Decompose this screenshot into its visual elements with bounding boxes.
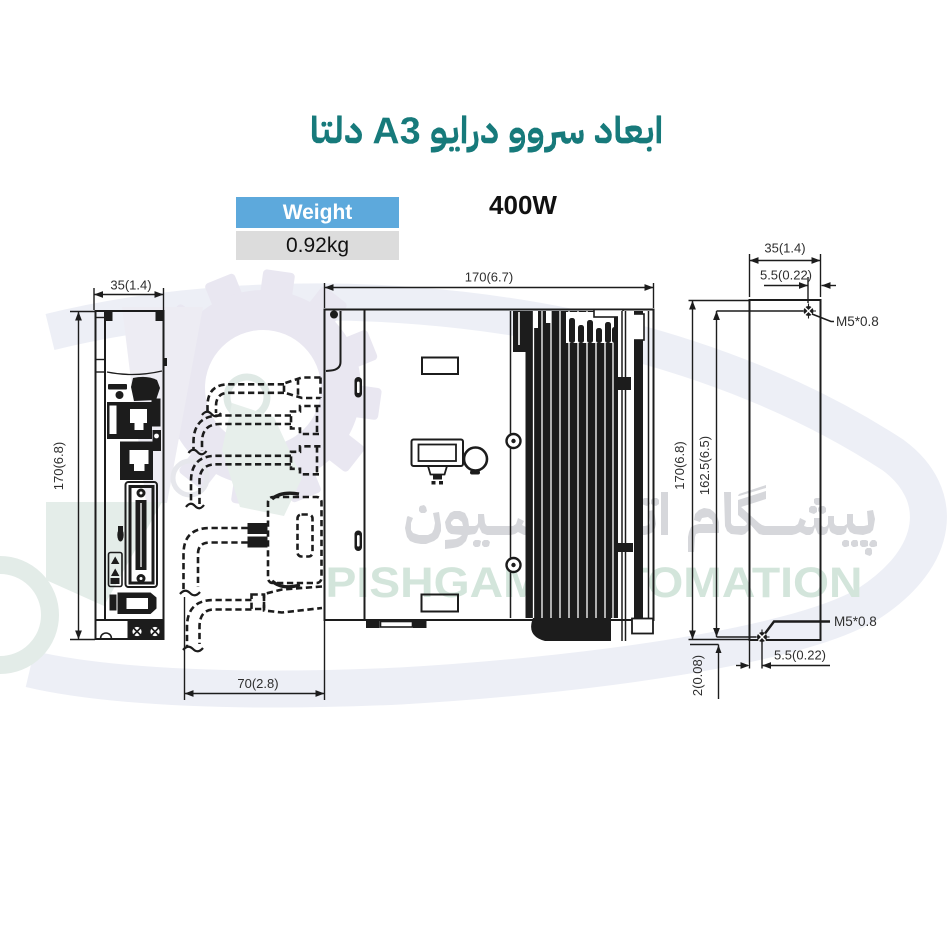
svg-text:70(2.8): 70(2.8) — [237, 676, 278, 691]
svg-text:35(1.4): 35(1.4) — [764, 241, 805, 256]
svg-text:35(1.4): 35(1.4) — [110, 278, 151, 293]
svg-text:170(6.7): 170(6.7) — [465, 270, 513, 285]
svg-text:170(6.8): 170(6.8) — [672, 441, 687, 489]
svg-text:M5*0.8: M5*0.8 — [834, 614, 877, 629]
svg-text:M5*0.8: M5*0.8 — [836, 314, 879, 329]
svg-text:5.5(0.22): 5.5(0.22) — [760, 268, 812, 283]
svg-text:162.5(6.5): 162.5(6.5) — [697, 436, 712, 495]
svg-text:2(0.08): 2(0.08) — [690, 655, 705, 696]
svg-text:170(6.8): 170(6.8) — [51, 442, 66, 490]
svg-text:5.5(0.22): 5.5(0.22) — [774, 648, 826, 663]
